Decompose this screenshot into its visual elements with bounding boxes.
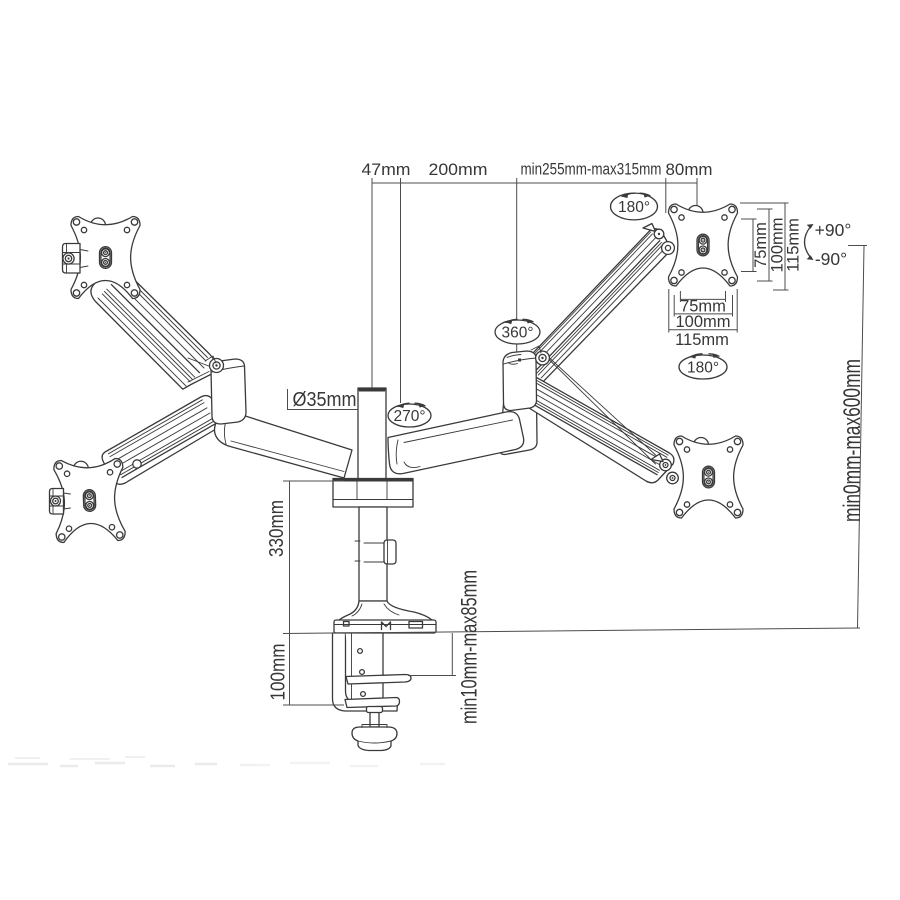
svg-text:180°: 180°	[687, 360, 719, 377]
svg-text:+90°: +90°	[815, 220, 852, 240]
svg-text:47mm: 47mm	[362, 160, 411, 179]
svg-text:360°: 360°	[501, 325, 533, 342]
svg-text:min10mm-max85mm: min10mm-max85mm	[457, 570, 482, 724]
svg-text:100mm: 100mm	[675, 313, 730, 331]
svg-text:115mm: 115mm	[675, 331, 729, 349]
svg-text:330mm: 330mm	[266, 500, 288, 557]
svg-text:115mm: 115mm	[785, 218, 803, 272]
svg-text:Ø35mm: Ø35mm	[293, 388, 357, 411]
svg-text:-90°: -90°	[815, 249, 847, 269]
svg-text:80mm: 80mm	[666, 160, 713, 179]
svg-text:180°: 180°	[618, 199, 650, 216]
svg-text:min0mm-max600mm: min0mm-max600mm	[839, 359, 866, 522]
svg-text:200mm: 200mm	[429, 160, 488, 179]
svg-text:100mm: 100mm	[268, 644, 290, 701]
svg-text:270°: 270°	[393, 408, 425, 425]
svg-text:75mm: 75mm	[752, 222, 770, 268]
svg-text:min255mm-max315mm: min255mm-max315mm	[521, 161, 662, 179]
